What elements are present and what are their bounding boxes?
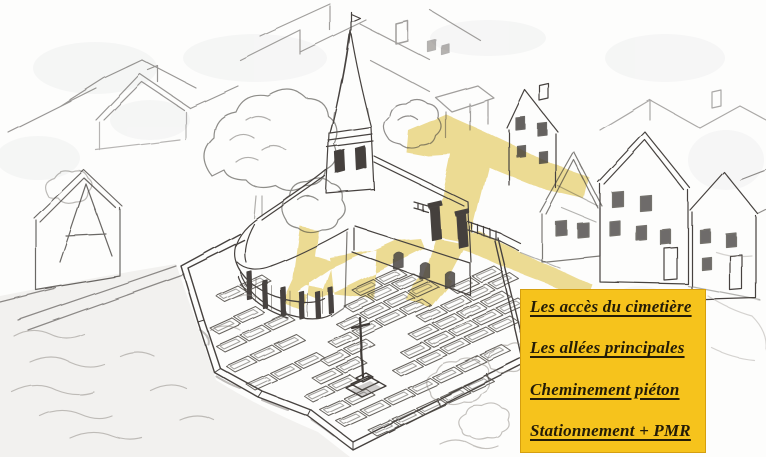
legend-item-allees-principales: Les allées principales (530, 338, 699, 358)
legend-item-cheminement-pieton: Cheminement piéton (530, 380, 699, 400)
church-bell-tower (326, 127, 374, 193)
cross-monument (346, 318, 386, 397)
legend-panel: Les accès du cimetière Les allées princi… (520, 289, 706, 453)
legend-item-acces-cimetiere: Les accès du cimetière (530, 297, 699, 317)
legend-item-stationnement-pmr: Stationnement + PMR (530, 421, 699, 441)
church-spire (330, 12, 371, 133)
page: Les accès du cimetière Les allées princi… (0, 0, 766, 457)
left-house (34, 170, 122, 290)
